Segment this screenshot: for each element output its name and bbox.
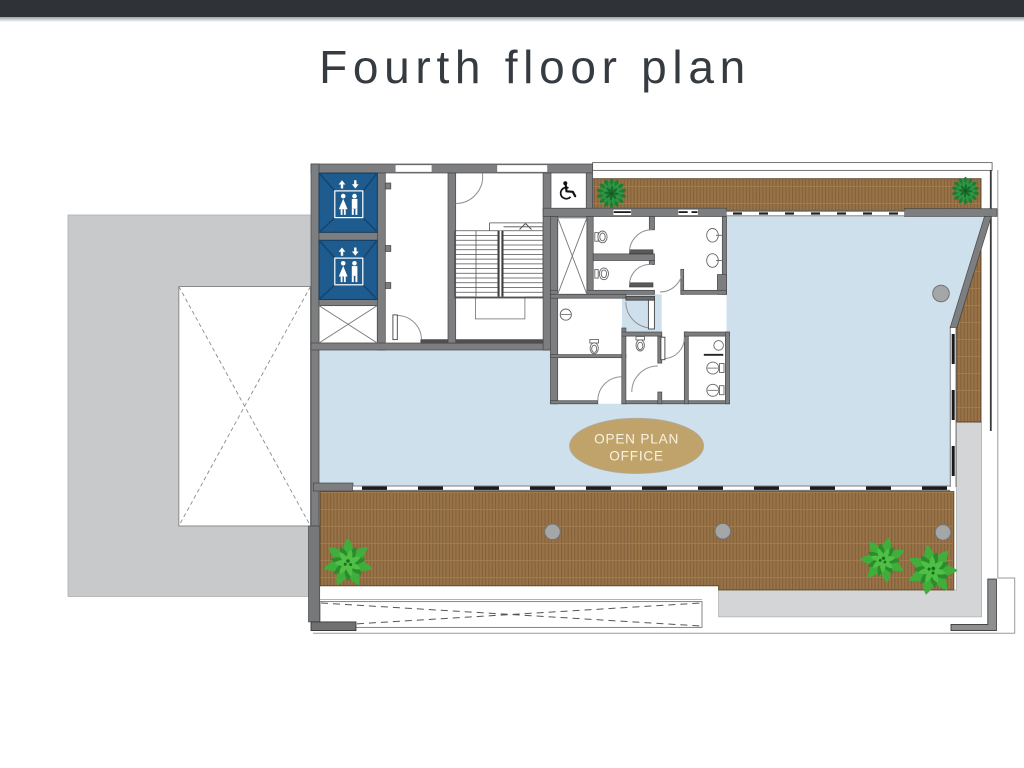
svg-text:OFFICE: OFFICE bbox=[609, 449, 664, 464]
svg-text:OPEN PLAN: OPEN PLAN bbox=[594, 432, 679, 447]
